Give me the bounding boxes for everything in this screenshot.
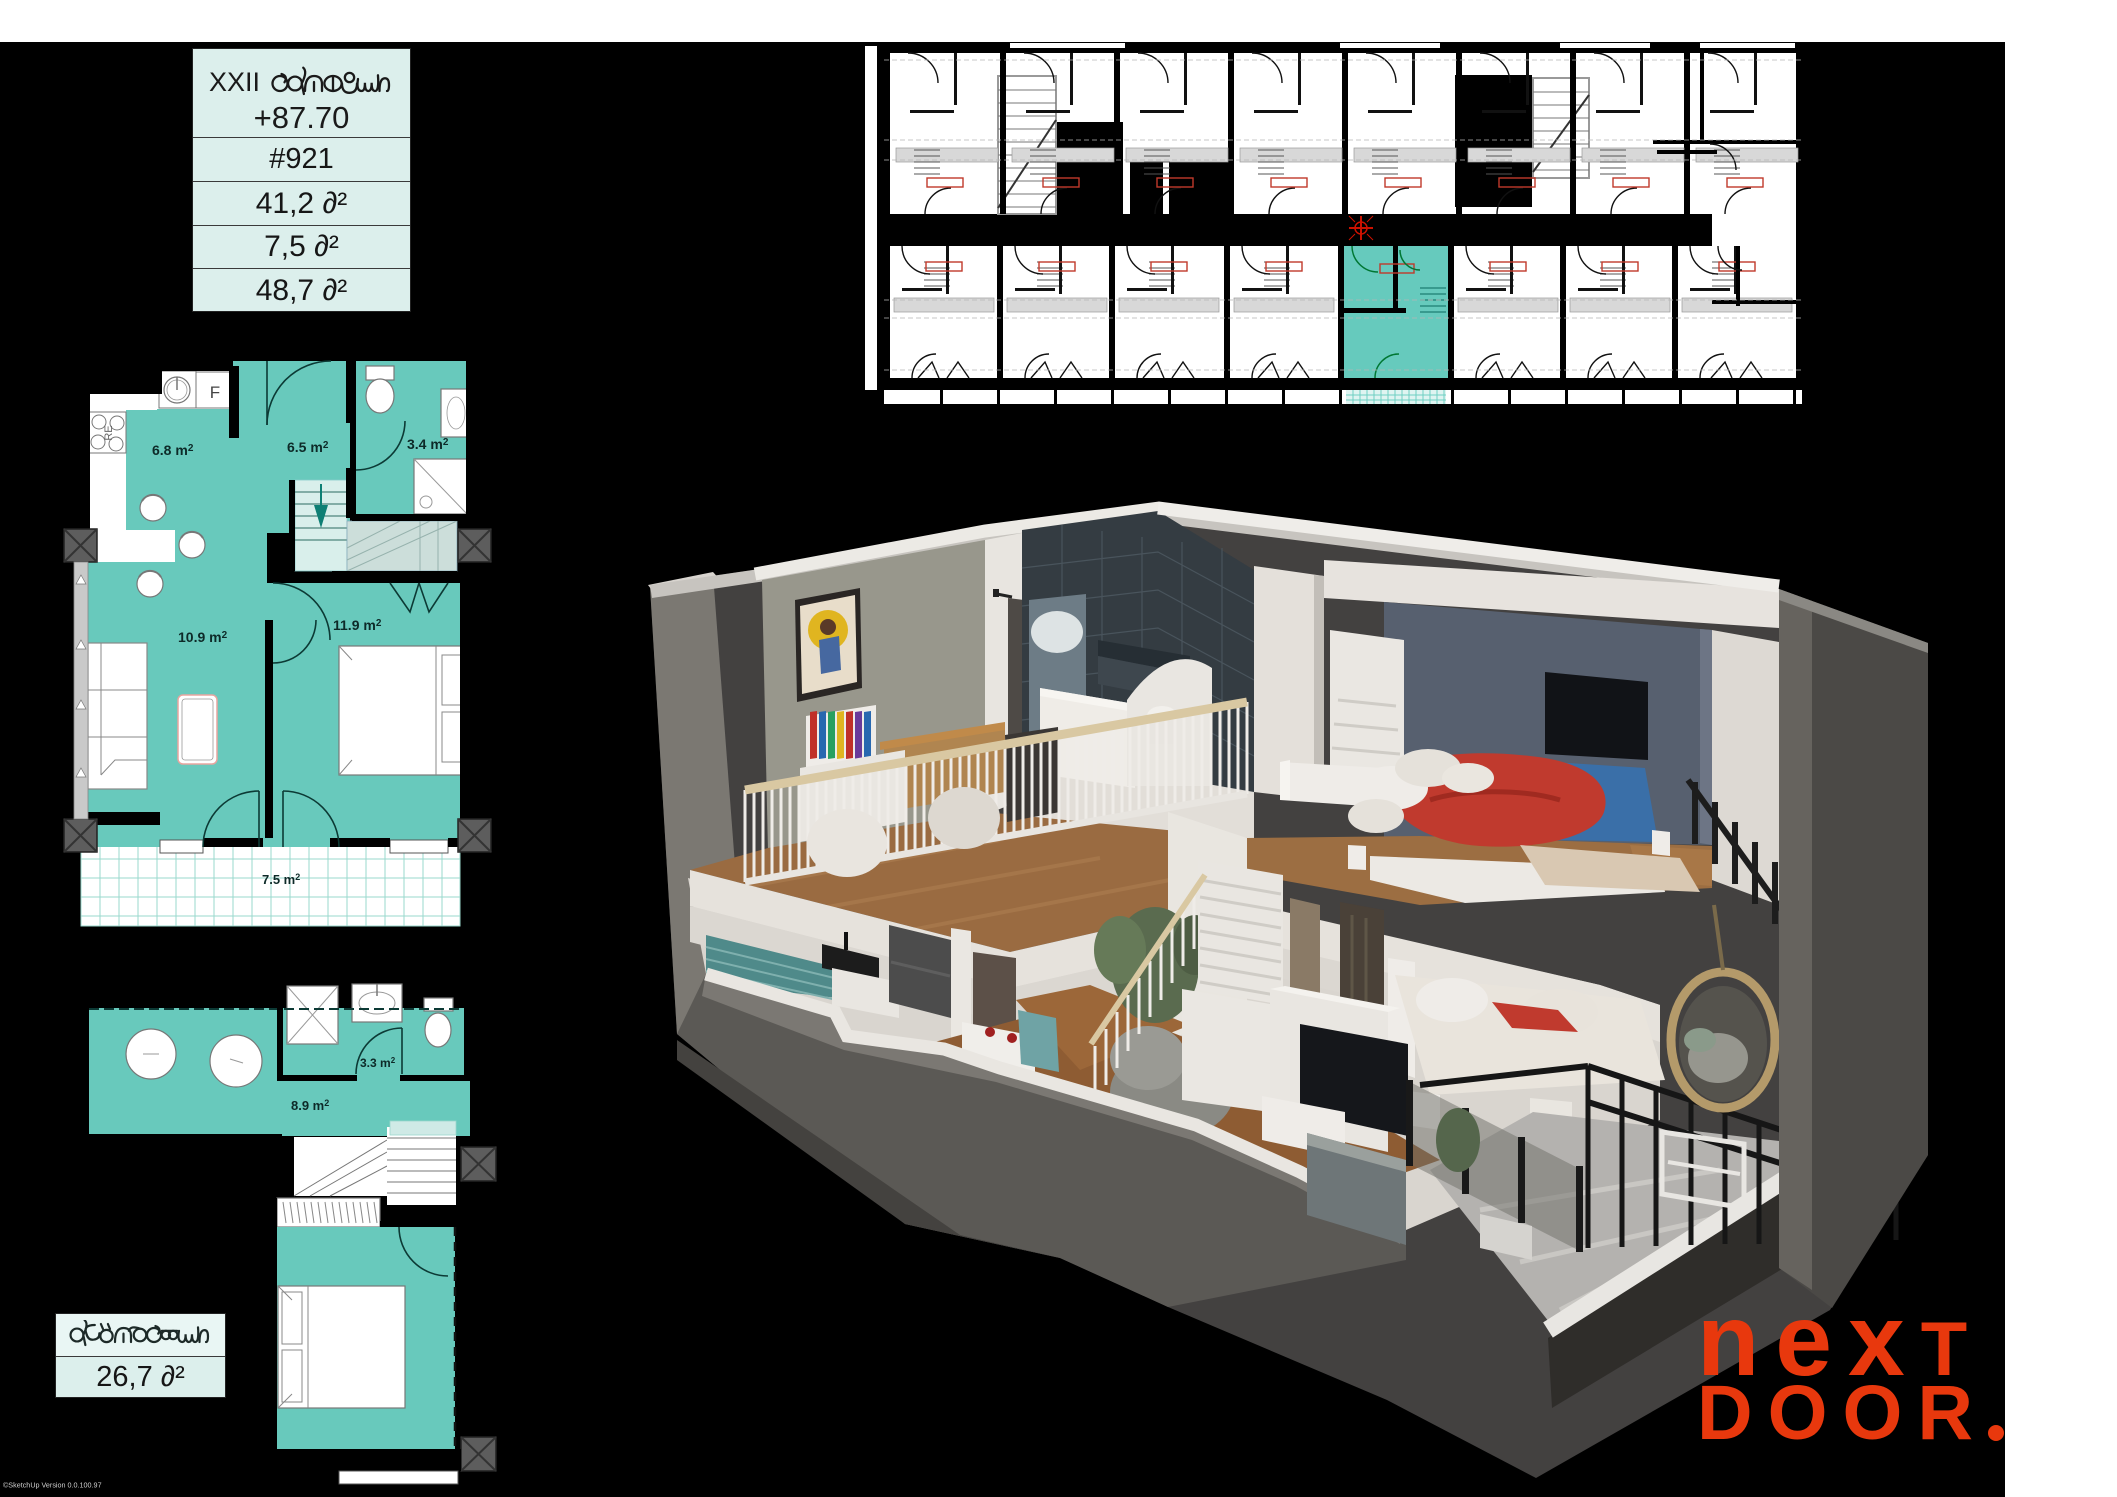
svg-text:3.3 m2: 3.3 m2 (360, 1056, 396, 1070)
svg-text:RE: RE (103, 425, 115, 440)
svg-text:3.4 m2: 3.4 m2 (407, 436, 449, 452)
svg-text:11.9 m2: 11.9 m2 (333, 617, 382, 633)
svg-text:7.5 m2: 7.5 m2 (262, 872, 300, 887)
svg-text:6.8 m2: 6.8 m2 (152, 442, 194, 458)
svg-text:F: F (210, 383, 220, 402)
svg-text:10.9 m2: 10.9 m2 (178, 629, 228, 645)
svg-text:6.5 m2: 6.5 m2 (287, 439, 329, 455)
svg-text:8.9 m2: 8.9 m2 (291, 1098, 329, 1113)
